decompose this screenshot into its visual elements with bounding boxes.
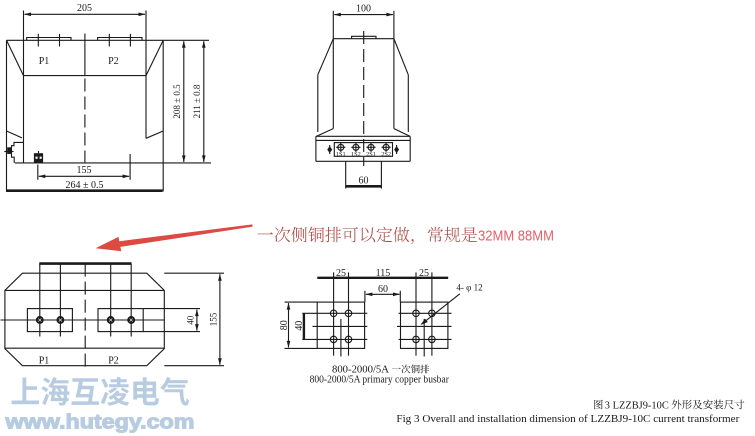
svg-text:100: 100	[356, 4, 371, 15]
svg-text:264 ± 0.5: 264 ± 0.5	[66, 180, 104, 191]
svg-text:1S2: 1S2	[351, 151, 361, 158]
svg-text:80: 80	[279, 320, 290, 330]
svg-text:P1: P1	[39, 56, 50, 67]
svg-text:155: 155	[77, 165, 92, 176]
svg-text:208 ± 0.5: 208 ± 0.5	[172, 84, 182, 119]
svg-text:25: 25	[336, 268, 346, 279]
svg-text:1S1: 1S1	[336, 151, 346, 158]
svg-text:www.hutegy.com: www.hutegy.com	[4, 412, 194, 434]
svg-text:Fig 3 Overall and installation: Fig 3 Overall and installation dimension…	[396, 414, 739, 425]
svg-text:211 ± 0.8: 211 ± 0.8	[192, 84, 202, 118]
svg-text:4- φ 12: 4- φ 12	[456, 283, 482, 293]
svg-text:155: 155	[208, 312, 218, 326]
svg-text:P2: P2	[108, 355, 119, 366]
svg-text:2S2: 2S2	[381, 151, 391, 158]
svg-text:25: 25	[419, 268, 429, 279]
svg-text:P2: P2	[108, 56, 119, 67]
svg-text:205: 205	[77, 3, 92, 14]
svg-text:115: 115	[376, 268, 391, 279]
svg-text:40: 40	[185, 315, 195, 325]
svg-text:2S1: 2S1	[366, 151, 376, 158]
svg-text:P1: P1	[39, 355, 50, 366]
svg-text:32MM 88MM: 32MM 88MM	[478, 228, 554, 245]
svg-text:60: 60	[378, 284, 388, 295]
svg-text:3 LZZBJ9-10C: 3 LZZBJ9-10C	[605, 400, 669, 411]
svg-text:60: 60	[359, 176, 369, 187]
svg-text:40: 40	[294, 321, 305, 331]
svg-text:800-2000/5A primary copper bus: 800-2000/5A primary copper busbar	[310, 374, 450, 385]
